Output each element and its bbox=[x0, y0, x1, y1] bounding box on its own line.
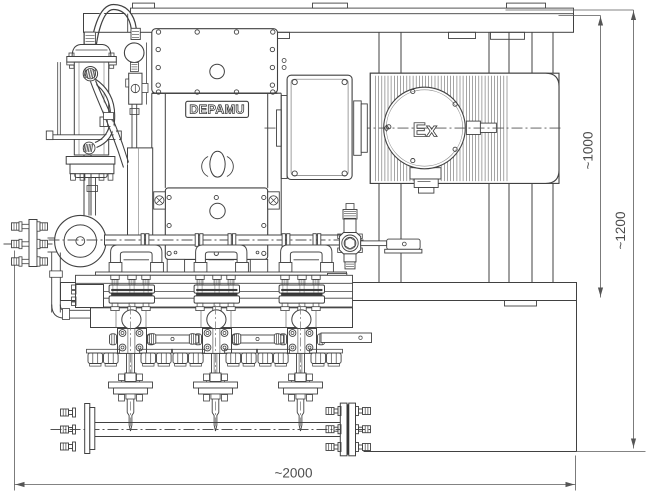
svg-text:~2000: ~2000 bbox=[275, 466, 313, 481]
svg-text:~1000: ~1000 bbox=[581, 132, 596, 170]
svg-text:DEPAMU: DEPAMU bbox=[189, 103, 244, 117]
svg-text:Ex: Ex bbox=[413, 120, 437, 142]
svg-text:~1200: ~1200 bbox=[613, 212, 628, 250]
